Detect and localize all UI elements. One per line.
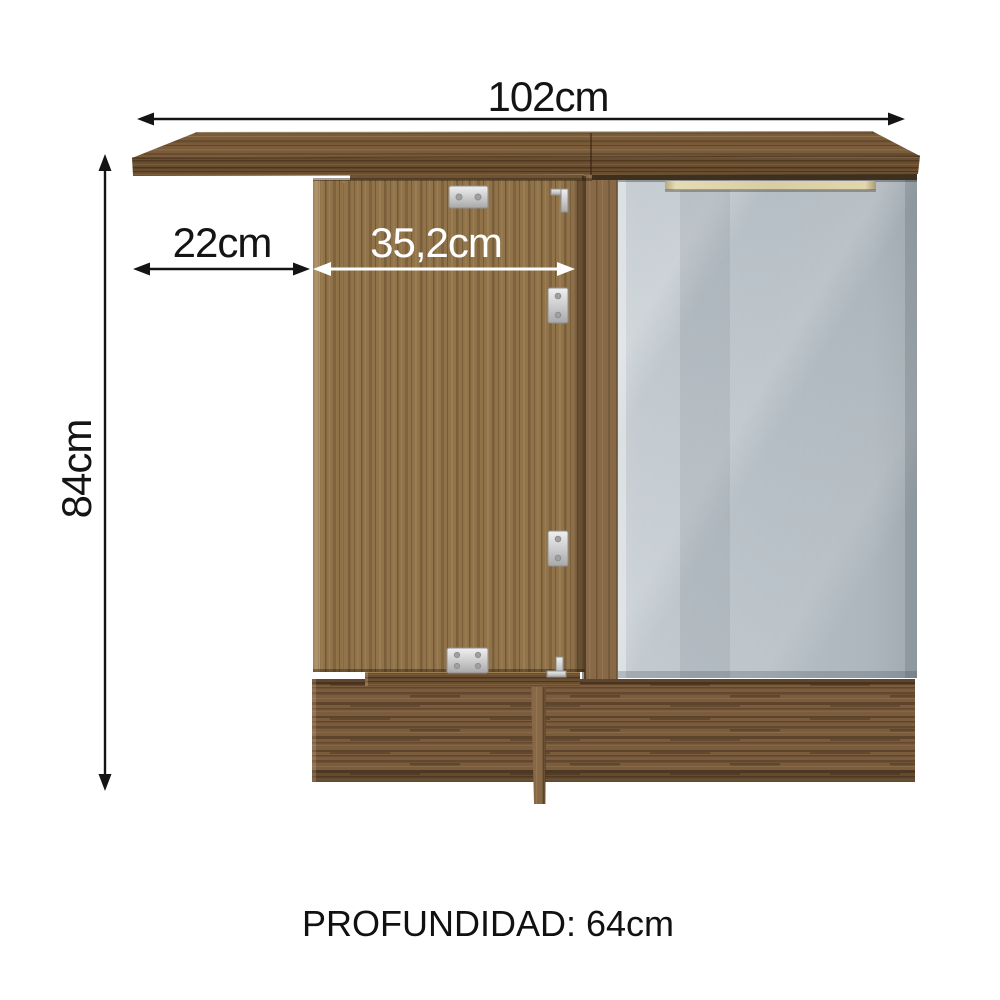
countertop-surface bbox=[132, 131, 920, 158]
hinge-screw bbox=[454, 652, 459, 657]
open-door-right-shade bbox=[571, 180, 585, 672]
countertop bbox=[132, 131, 920, 176]
hinge-bottom bbox=[447, 648, 488, 673]
open-door-top-shadow bbox=[313, 178, 592, 181]
gray-door-gloss bbox=[618, 178, 917, 678]
open-door-plank-line bbox=[343, 183, 345, 670]
product-dimension-diagram: 102cm 22cm 35,2cm 84cm PROFUNDIDAD: 64cm bbox=[0, 0, 1000, 1000]
gray-door-right-shade bbox=[905, 178, 917, 678]
total-width-label: 102cm bbox=[487, 76, 608, 118]
hinge-screw bbox=[555, 536, 561, 542]
hinge-screw bbox=[555, 312, 561, 318]
height-arrow bbox=[99, 154, 112, 791]
plinth-bottom-shade bbox=[312, 770, 915, 782]
overhang-width-label: 22cm bbox=[173, 222, 272, 264]
open-door-left-highlight bbox=[313, 180, 320, 672]
front-leg-shade bbox=[543, 687, 546, 804]
cabinet-drawing bbox=[0, 0, 1000, 1000]
door-handle-shadow bbox=[665, 189, 876, 192]
gray-door-left-highlight bbox=[618, 178, 626, 678]
plinth-left-edge bbox=[312, 679, 316, 782]
height-label: 84cm bbox=[56, 420, 98, 519]
corner-bracket-top-arm bbox=[561, 189, 568, 212]
gray-door-reflection-band bbox=[680, 178, 730, 678]
hinge-screw bbox=[555, 555, 561, 561]
door-handle bbox=[665, 181, 876, 190]
hinge-screw bbox=[454, 663, 459, 668]
depth-caption: PROFUNDIDAD: 64cm bbox=[302, 906, 674, 942]
open-door-width-label: 35,2cm bbox=[370, 222, 502, 264]
center-stile bbox=[584, 174, 618, 688]
hinge-screw bbox=[555, 293, 561, 299]
gray-door-bottom-shade bbox=[618, 671, 917, 678]
hinge-screw bbox=[475, 652, 480, 657]
corner-bracket-bottom bbox=[547, 671, 566, 677]
gray-door bbox=[618, 178, 917, 678]
hinge-screw bbox=[475, 663, 480, 668]
hinge-screw bbox=[456, 194, 462, 200]
countertop-back-highlight bbox=[197, 132, 872, 133]
plinth bbox=[312, 679, 915, 782]
hinge-top bbox=[449, 186, 488, 208]
hinge-screw bbox=[475, 194, 481, 200]
countertop-front-edge bbox=[132, 156, 920, 176]
